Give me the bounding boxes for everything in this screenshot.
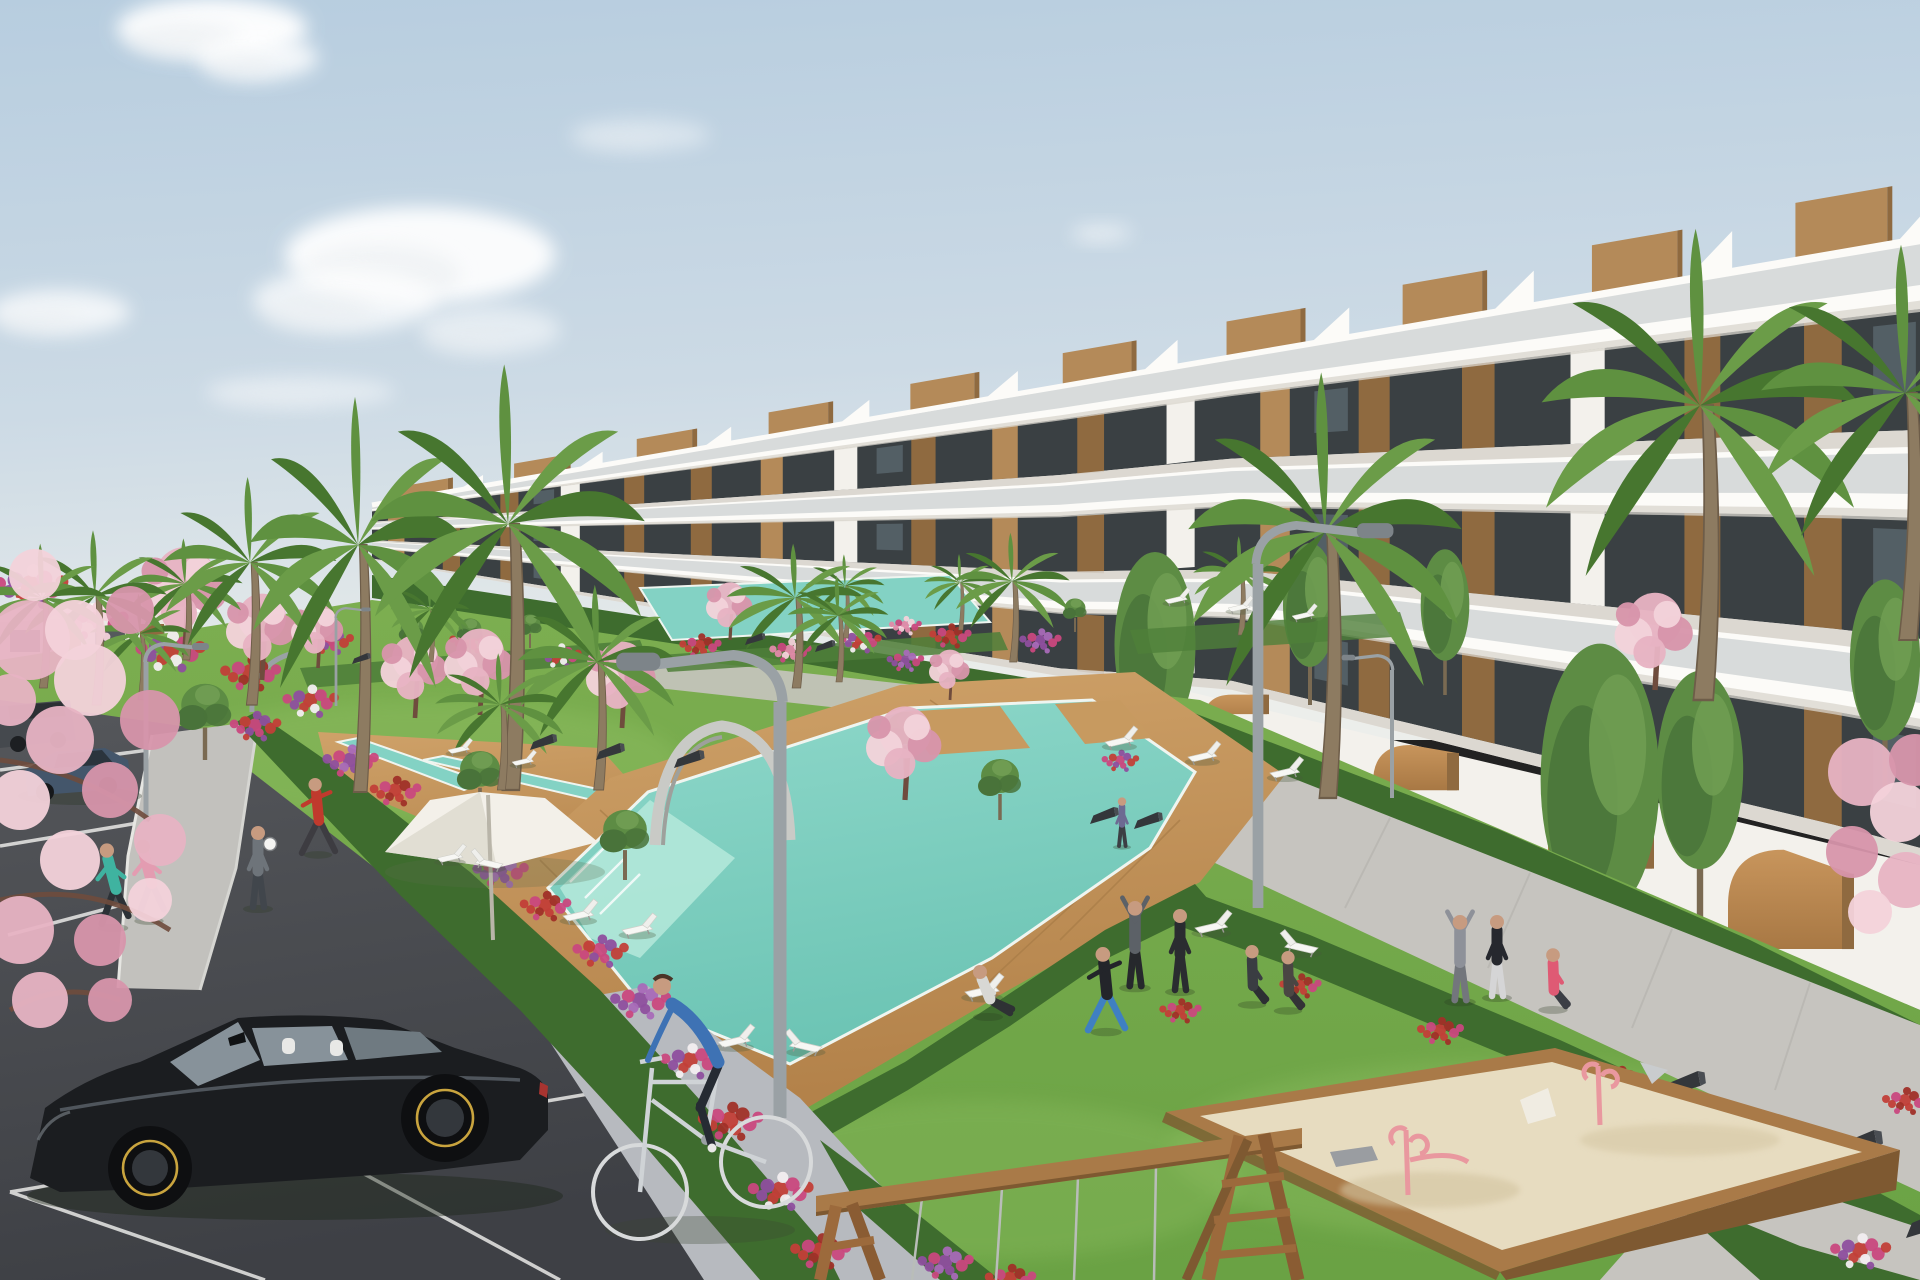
- facade-pier: [1462, 653, 1495, 744]
- facade-pier: [1260, 387, 1290, 457]
- facade-pier: [1077, 413, 1104, 474]
- facade-pier: [1359, 636, 1390, 718]
- facade-pier: [911, 436, 935, 485]
- blossom-branch-bloom: [1826, 826, 1878, 878]
- blossom-branch-bloom: [26, 706, 94, 774]
- facade-pier: [691, 523, 712, 556]
- blossom-branch-bloom: [134, 814, 186, 866]
- facade-pier: [1077, 515, 1104, 574]
- blossom-branch-bloom: [40, 830, 100, 890]
- blossom-branch-bloom: [12, 972, 68, 1028]
- facade-pier: [992, 517, 1018, 570]
- blossom-branch-bloom: [128, 878, 172, 922]
- arcade-pier: [1447, 753, 1459, 790]
- facade-pier: [1167, 399, 1195, 464]
- blossom-branch-bloom: [106, 586, 154, 634]
- facade-pier: [624, 524, 644, 553]
- blossom-branch-bloom: [9, 549, 61, 601]
- facade-pier: [992, 425, 1018, 480]
- facade-pier: [1359, 375, 1390, 454]
- cloud: [420, 306, 560, 354]
- facade-pier: [1462, 362, 1495, 449]
- blossom-branch-bloom: [120, 690, 180, 750]
- cloud: [205, 376, 395, 408]
- render-image: New-build residential resort complex — e…: [0, 0, 1920, 1280]
- facade-pier: [834, 520, 857, 563]
- facade-pier: [761, 521, 783, 559]
- facade-pier: [1804, 515, 1842, 630]
- facade-pier: [1571, 511, 1605, 606]
- cloud: [1072, 224, 1132, 242]
- facade-pier: [691, 466, 712, 500]
- facade-pier: [624, 475, 644, 505]
- blossom-branch-bloom: [1848, 890, 1892, 934]
- facade-pier: [911, 518, 935, 566]
- facade-pier: [761, 456, 783, 495]
- blossom-branch-bloom: [74, 914, 126, 966]
- football: [264, 838, 277, 851]
- cloud: [198, 36, 318, 80]
- facade-pier: [1077, 614, 1104, 675]
- facade-pier: [834, 446, 857, 490]
- blossom-branch-bloom: [88, 978, 132, 1022]
- cloud: [570, 119, 710, 151]
- cloud: [253, 268, 437, 332]
- blossom-branch-bloom: [45, 600, 105, 660]
- blossom-branch-bloom: [82, 762, 138, 818]
